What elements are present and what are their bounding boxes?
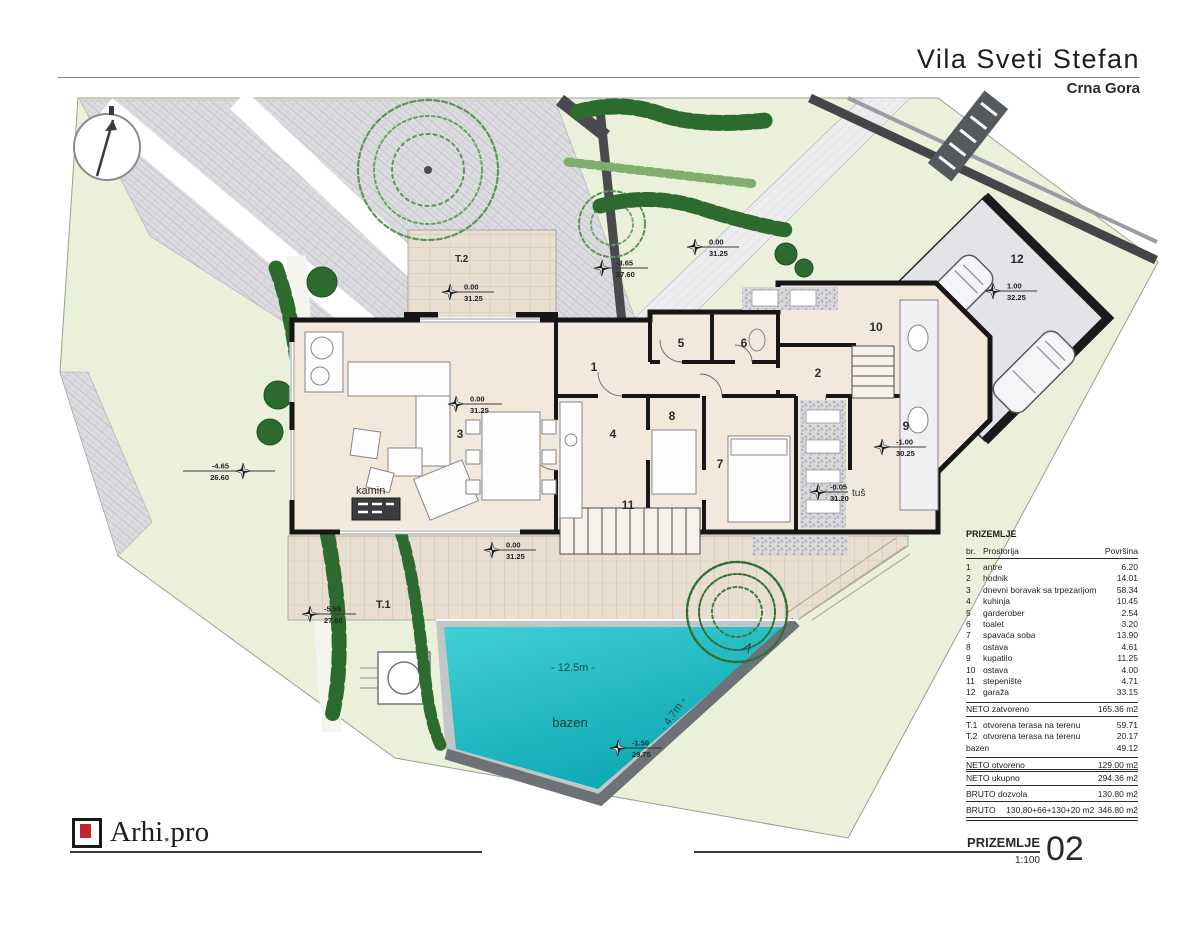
firm-logo-text: Arhi.pro (110, 816, 209, 849)
footer-rule-right (694, 851, 1040, 853)
room-number-cell: 9 (966, 653, 983, 664)
summary-rows: NETO ukupno 294.36 m2 BRUTO dozvola 130.… (966, 769, 1138, 817)
table-row: 7 spavaća soba 13.90 (966, 630, 1138, 641)
svg-text:0.00: 0.00 (464, 283, 479, 292)
room-name-cell: spavaća soba (983, 630, 1117, 641)
room-label-9: 9 (903, 419, 910, 433)
room-area-cell: 13.90 (1117, 630, 1138, 641)
open-number-cell: T.2 (966, 731, 983, 742)
room-label-1: 1 (591, 360, 598, 374)
summary-table: NETO ukupno 294.36 m2 BRUTO dozvola 130.… (966, 769, 1138, 821)
room-number-cell: 5 (966, 608, 983, 619)
net-closed-row: NETO zatvoreno 165.36 m2 (966, 702, 1138, 717)
sheet-scale: 1:100 (958, 855, 1040, 866)
svg-text:0.00: 0.00 (470, 395, 485, 404)
summary-value: 346.80 m2 (1098, 805, 1138, 815)
svg-text:31.20: 31.20 (830, 494, 849, 503)
room-area-cell: 10.45 (1117, 596, 1138, 607)
room-name-cell: kupatilo (983, 653, 1117, 664)
room-name-cell: hodnik (983, 573, 1117, 584)
room-name-cell: ostava (983, 665, 1121, 676)
room-name-cell: antre (983, 562, 1121, 573)
tus-label: tuš (852, 488, 865, 499)
room-label-3: 3 (457, 427, 464, 441)
room-label-10: 10 (869, 320, 883, 334)
room-name-cell: ostava (983, 642, 1121, 653)
table-row: 5 garderober 2.54 (966, 608, 1138, 619)
svg-text:31.25: 31.25 (464, 294, 483, 303)
area-table-header: br. Prostorija Površina (966, 546, 1138, 559)
room-name-cell: garaža (983, 687, 1117, 698)
area-table-title: PRIZEMLJE (966, 529, 1138, 539)
open-area-cell: 59.71 (1117, 720, 1138, 731)
table-row: 3 dnevni boravak sa trpezarijom 58.34 (966, 585, 1138, 596)
open-rows: T.1 otvorena terasa na terenu 59.71 T.2 … (966, 720, 1138, 754)
table-row: 6 toalet 3.20 (966, 619, 1138, 630)
open-number-cell: bazen (966, 743, 983, 754)
table-row: 12 garaža 33.15 (966, 687, 1138, 698)
table-row: 1 antre 6.20 (966, 562, 1138, 573)
room-number-cell: 4 (966, 596, 983, 607)
room-label-4: 4 (610, 427, 617, 441)
net-closed-label: NETO zatvoreno (966, 704, 1098, 714)
logo-pre: Arhi (110, 816, 163, 848)
svg-text:31.25: 31.25 (709, 249, 728, 258)
fireplace (352, 498, 400, 520)
room-number-cell: 7 (966, 630, 983, 641)
table-row: 11 stepenište 4.71 (966, 676, 1138, 687)
sheet-number: 02 (1046, 830, 1084, 869)
svg-text:0.00: 0.00 (506, 541, 521, 550)
room-number-cell: 11 (966, 676, 983, 687)
table-row: 8 ostava 4.61 (966, 642, 1138, 653)
svg-text:31.25: 31.25 (470, 406, 489, 415)
summary-row: BRUTO 130.80+66+130+20 m2 346.80 m2 (966, 801, 1138, 817)
summary-value: 294.36 m2 (1098, 773, 1138, 783)
room-number-cell: 2 (966, 573, 983, 584)
area-table: PRIZEMLJE br. Prostorija Površina 1 antr… (966, 529, 1138, 775)
room-area-cell: 4.61 (1121, 642, 1138, 653)
svg-text:-1.00: -1.00 (896, 438, 913, 447)
svg-text:-4.65: -4.65 (212, 462, 229, 471)
svg-text:-0.05: -0.05 (830, 483, 847, 492)
project-location: Crna Gora (1067, 80, 1140, 97)
summary-value: 130.80 m2 (1098, 789, 1138, 799)
svg-text:-3.65: -3.65 (616, 259, 633, 268)
room-number-cell: 8 (966, 642, 983, 653)
room-number-cell: 12 (966, 687, 983, 698)
svg-text:-1.50: -1.50 (632, 739, 649, 748)
room-area-cell: 11.25 (1117, 653, 1138, 664)
table-row: 9 kupatilo 11.25 (966, 653, 1138, 664)
t2-label: T.2 (455, 254, 469, 265)
table-row: bazen 49.12 (966, 743, 1138, 754)
room-number-cell: 6 (966, 619, 983, 630)
col-header-number: br. (966, 546, 983, 556)
title-rule (58, 77, 1140, 78)
house (291, 283, 990, 556)
room-number-cell: 10 (966, 665, 983, 676)
firm-logo: Arhi.pro (72, 816, 209, 849)
room-number-cell: 1 (966, 562, 983, 573)
table-row: T.1 otvorena terasa na terenu 59.71 (966, 720, 1138, 731)
room-number-cell: 3 (966, 585, 983, 596)
kamin-label: kamin (356, 485, 385, 497)
col-header-room: Prostorija (983, 546, 1105, 556)
room-area-cell: 3.20 (1121, 619, 1138, 630)
room-area-cell: 4.71 (1121, 676, 1138, 687)
room-name-cell: kuhinja (983, 596, 1117, 607)
summary-label: NETO ukupno (966, 773, 1059, 783)
footer-rule-left (70, 851, 482, 853)
drawing-sheet: 1 2 3 4 5 6 7 8 9 10 11 12 kamin tuš T.2… (0, 0, 1200, 926)
room-area-cell: 4.00 (1121, 665, 1138, 676)
open-number-cell: T.1 (966, 720, 983, 731)
open-area-cell: 49.12 (1117, 743, 1138, 754)
room-label-12: 12 (1010, 252, 1024, 266)
svg-text:26.60: 26.60 (210, 473, 229, 482)
room-label-6: 6 (741, 336, 748, 350)
summary-row: BRUTO dozvola 130.80 m2 (966, 785, 1138, 801)
room-label-11: 11 (622, 498, 635, 512)
room-name-cell: dnevni boravak sa trpezarijom (983, 585, 1117, 596)
stairs-hall (852, 346, 894, 398)
room-name-cell: toalet (983, 619, 1121, 630)
svg-text:32.25: 32.25 (1007, 293, 1026, 302)
svg-text:1.00: 1.00 (1007, 282, 1022, 291)
room-area-cell: 14.01 (1117, 573, 1138, 584)
open-area-cell: 20.17 (1117, 731, 1138, 742)
firm-logo-icon (72, 818, 102, 848)
open-name-cell: otvorena terasa na terenu (983, 731, 1117, 742)
room-area-cell: 2.54 (1121, 608, 1138, 619)
summary-formula: 130.80+66+130+20 m2 (1003, 805, 1098, 815)
room-area-cell: 58.34 (1117, 585, 1138, 596)
table-row: 10 ostava 4.00 (966, 665, 1138, 676)
net-closed-value: 165.36 m2 (1098, 704, 1138, 714)
svg-text:27.60: 27.60 (324, 616, 343, 625)
bazen-label: bazen (552, 715, 587, 730)
logo-post: pro (170, 816, 209, 848)
sheet-title: PRIZEMLJE (958, 835, 1040, 850)
summary-end-rule (966, 817, 1138, 821)
col-header-area: Površina (1105, 546, 1138, 556)
summary-row: NETO ukupno 294.36 m2 (966, 769, 1138, 785)
svg-text:0.00: 0.00 (709, 238, 724, 247)
terrace-t2 (404, 230, 558, 321)
room-area-cell: 33.15 (1117, 687, 1138, 698)
open-name-cell: otvorena terasa na terenu (983, 720, 1117, 731)
room-name-cell: stepenište (983, 676, 1121, 687)
pool-length-dim: - 12.5m - (551, 662, 595, 674)
table-row: 2 hodnik 14.01 (966, 573, 1138, 584)
room-rows: 1 antre 6.20 2 hodnik 14.01 3 dnevni bor… (966, 562, 1138, 699)
svg-text:27.60: 27.60 (616, 270, 635, 279)
svg-text:29.75: 29.75 (632, 750, 651, 759)
room-name-cell: garderober (983, 608, 1121, 619)
summary-label: BRUTO dozvola (966, 789, 1063, 799)
svg-text:31.25: 31.25 (506, 552, 525, 561)
svg-text:30.25: 30.25 (896, 449, 915, 458)
room-label-5: 5 (678, 336, 685, 350)
room-label-8: 8 (669, 409, 676, 423)
room-label-2: 2 (815, 366, 822, 380)
room-label-7: 7 (717, 457, 724, 471)
svg-text:-5.55: -5.55 (324, 605, 341, 614)
room-area-cell: 6.20 (1121, 562, 1138, 573)
project-title: Vila Sveti Stefan (917, 44, 1140, 75)
t1-label: T.1 (376, 599, 391, 611)
table-row: 4 kuhinja 10.45 (966, 596, 1138, 607)
table-row: T.2 otvorena terasa na terenu 20.17 (966, 731, 1138, 742)
summary-label: BRUTO (966, 805, 1003, 815)
